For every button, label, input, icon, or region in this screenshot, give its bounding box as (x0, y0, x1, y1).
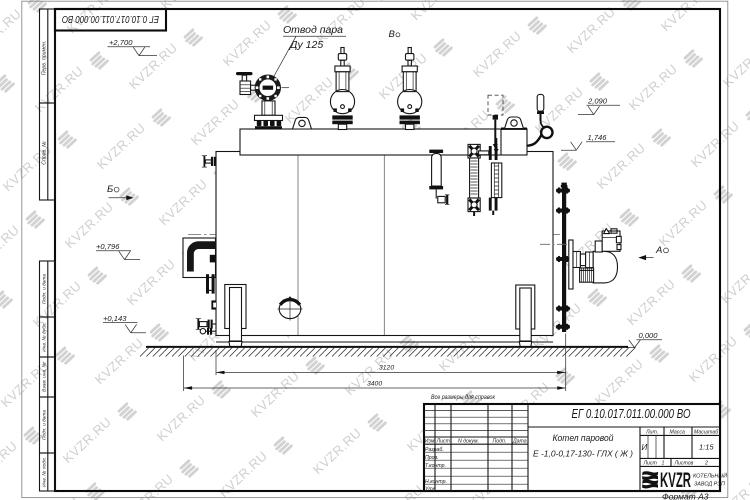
svg-text:ЕГ 0.10.017.011.00.000 ВО: ЕГ 0.10.017.011.00.000 ВО (62, 13, 159, 24)
svg-text:2: 2 (704, 461, 708, 467)
svg-text:Подп. и дата: Подп. и дата (41, 410, 47, 440)
svg-text:KVZR.RU: KVZR.RU (122, 471, 177, 500)
svg-text:KVZR.RU: KVZR.RU (688, 118, 743, 170)
svg-text:3400: 3400 (367, 380, 382, 387)
svg-text:Утв.: Утв. (425, 486, 437, 492)
svg-text:Е -1,0-0,17-130- ГЛХ ( Ж ): Е -1,0-0,17-130- ГЛХ ( Ж ) (533, 449, 633, 459)
svg-text:KVZR.RU: KVZR.RU (592, 356, 647, 408)
svg-text:1: 1 (662, 461, 665, 467)
svg-text:Все размеры для справок: Все размеры для справок (431, 393, 496, 401)
svg-text:KVZR.RU: KVZR.RU (0, 6, 24, 58)
svg-text:Масштаб: Масштаб (694, 430, 719, 436)
svg-text:Справ. №: Справ. № (41, 141, 47, 165)
svg-text:Ду 125: Ду 125 (289, 39, 323, 51)
svg-text:Дата: Дата (512, 439, 527, 445)
svg-text:KVZR.RU: KVZR.RU (124, 256, 179, 308)
svg-text:KVZR.RU: KVZR.RU (94, 120, 149, 172)
svg-text:В: В (389, 29, 396, 40)
svg-text:KVZR.RU: KVZR.RU (30, 278, 85, 330)
svg-text:KVZR.RU: KVZR.RU (626, 61, 681, 113)
svg-text:Б: Б (107, 184, 113, 195)
svg-text:Инв. № дубл.: Инв. № дубл. (41, 322, 47, 352)
svg-text:Подп. и дата: Подп. и дата (41, 274, 47, 304)
svg-text:KVZR.RU: KVZR.RU (282, 74, 337, 126)
svg-text:Формат А3: Формат А3 (662, 492, 709, 500)
svg-text:KVZR.RU: KVZR.RU (686, 333, 741, 385)
svg-text:ЕГ 0.10.017.011.00.000 ВО: ЕГ 0.10.017.011.00.000 ВО (572, 406, 691, 421)
svg-text:+0,143: +0,143 (103, 314, 127, 323)
svg-text:1:15: 1:15 (699, 443, 714, 452)
svg-text:Масса: Масса (670, 430, 685, 436)
svg-text:Разраб.: Разраб. (425, 447, 444, 453)
svg-text:Лист: Лист (436, 439, 451, 445)
svg-text:2,090: 2,090 (587, 97, 608, 106)
svg-text:Листов: Листов (674, 461, 694, 467)
svg-text:Перв. примен.: Перв. примен. (41, 41, 47, 75)
svg-text:0,000: 0,000 (639, 331, 659, 340)
svg-text:KVZR.RU: KVZR.RU (658, 0, 713, 34)
svg-text:KVZR.RU: KVZR.RU (248, 368, 303, 420)
svg-text:KVZR: KVZR (660, 468, 691, 492)
svg-text:Подп.: Подп. (493, 439, 507, 445)
svg-text:KVZR.RU: KVZR.RU (92, 335, 147, 387)
svg-text:3120: 3120 (379, 365, 394, 372)
svg-text:KVZR.RU: KVZR.RU (0, 222, 22, 274)
svg-text:KVZR.RU: KVZR.RU (310, 425, 365, 477)
svg-text:KVZR.RU: KVZR.RU (718, 254, 750, 306)
svg-text:N докум.: N докум. (458, 439, 479, 445)
svg-text:Отвод пара: Отвод пара (283, 24, 343, 36)
svg-text:KVZR.RU: KVZR.RU (216, 448, 271, 500)
svg-text:KVZR.RU: KVZR.RU (220, 17, 275, 69)
svg-text:И: И (642, 443, 648, 452)
svg-text:KVZR.RU: KVZR.RU (154, 392, 209, 444)
svg-text:KVZR.RU: KVZR.RU (656, 197, 711, 249)
svg-text:KVZR.RU: KVZR.RU (720, 38, 750, 90)
svg-text:КОТЕЛЬНЫЙ: КОТЕЛЬНЫЙ (693, 472, 727, 480)
svg-text:Лит.: Лит. (645, 430, 658, 436)
svg-text:Н.контр.: Н.контр. (425, 479, 447, 485)
svg-text:Пров.: Пров. (425, 455, 439, 461)
svg-text:KVZR.RU: KVZR.RU (0, 438, 20, 490)
svg-text:1,746: 1,746 (588, 133, 608, 142)
svg-text:Инв. № подл.: Инв. № подл. (41, 457, 47, 487)
svg-text:Котел паровой: Котел паровой (553, 433, 614, 443)
svg-text:Взам. инв. №: Взам. инв. № (41, 362, 47, 392)
svg-text:KVZR.RU: KVZR.RU (156, 176, 211, 228)
svg-text:ЗАВОД РЭП: ЗАВОД РЭП (694, 482, 725, 488)
svg-text:А: А (655, 245, 662, 256)
svg-text:KVZR.RU: KVZR.RU (188, 96, 243, 148)
svg-text:KVZR.RU: KVZR.RU (470, 28, 525, 80)
svg-text:+0,796: +0,796 (96, 242, 120, 251)
svg-text:KVZR.RU: KVZR.RU (564, 4, 619, 56)
svg-text:Лист: Лист (643, 461, 658, 467)
svg-text:KVZR.RU: KVZR.RU (594, 140, 649, 192)
svg-text:KVZR.RU: KVZR.RU (60, 414, 115, 466)
svg-text:KVZR.RU: KVZR.RU (408, 0, 463, 23)
svg-text:Изм.: Изм. (425, 439, 436, 445)
svg-text:+2,700: +2,700 (109, 38, 133, 47)
svg-text:KVZR.RU: KVZR.RU (28, 494, 83, 500)
svg-text:Т.контр.: Т.контр. (425, 463, 446, 469)
svg-text:KVZR.RU: KVZR.RU (624, 276, 679, 328)
